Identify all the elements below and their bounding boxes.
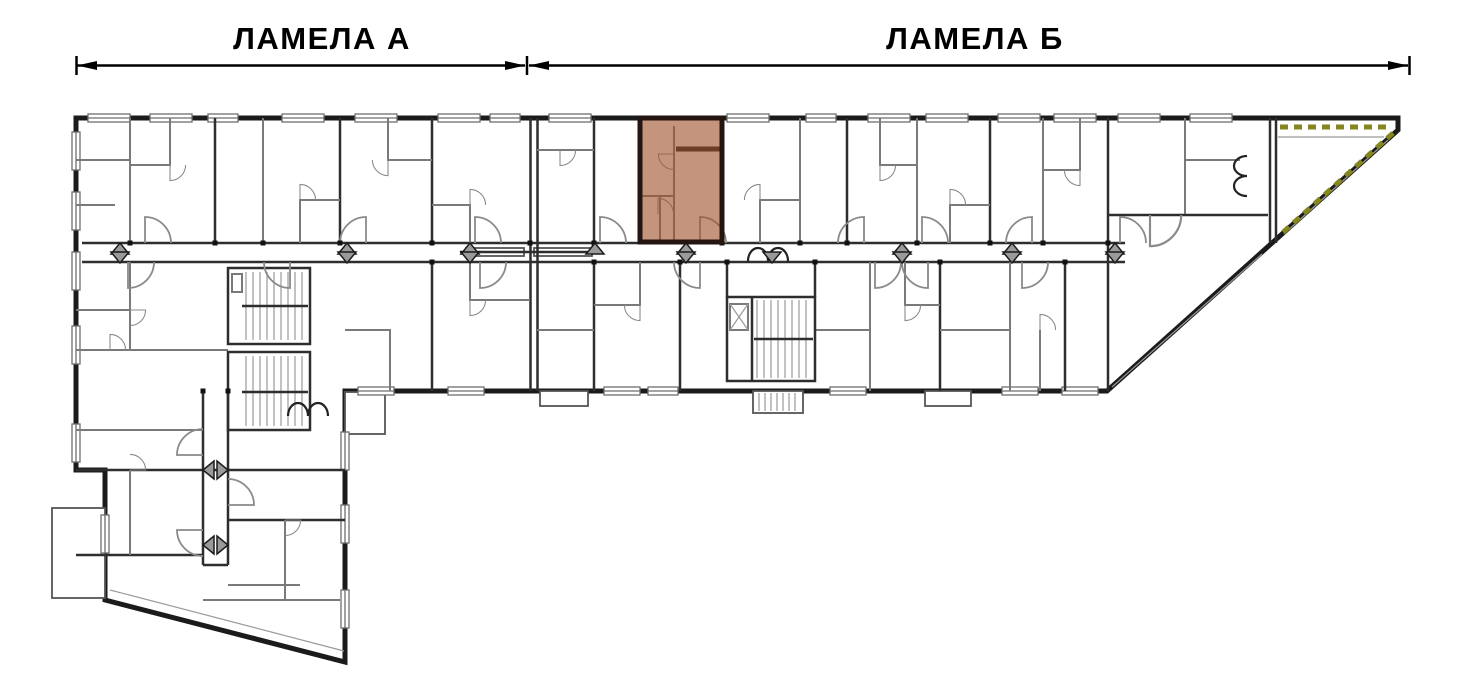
balcony-wing-corner — [345, 392, 385, 434]
balcony-left — [52, 508, 105, 598]
balcony-bottom-2 — [925, 391, 971, 406]
dim-arrow-left — [77, 61, 97, 70]
floor-plan-page: ЛАМЕЛА А ЛАМЕЛА Б — [0, 0, 1476, 691]
dim-arrow-right — [1388, 61, 1408, 70]
dim-arrow-left — [529, 61, 549, 70]
balcony-bottom-1 — [540, 391, 588, 406]
dimension-header: ЛАМЕЛА А ЛАМЕЛА Б — [77, 21, 1410, 75]
building-outline — [52, 118, 1398, 662]
floor-plan-canvas: ЛАМЕЛА А ЛАМЕЛА Б — [0, 0, 1476, 691]
lamela-a-label: ЛАМЕЛА А — [233, 21, 411, 56]
dimension-lamela-b: ЛАМЕЛА Б — [527, 21, 1410, 75]
highlighted-unit-fill[interactable] — [640, 118, 722, 242]
lamela-b-label: ЛАМЕЛА Б — [886, 21, 1064, 56]
dim-arrow-right — [505, 61, 525, 70]
entrance-steps — [753, 391, 803, 413]
highlighted-unit[interactable] — [640, 118, 726, 243]
dimension-lamela-a: ЛАМЕЛА А — [77, 21, 526, 75]
